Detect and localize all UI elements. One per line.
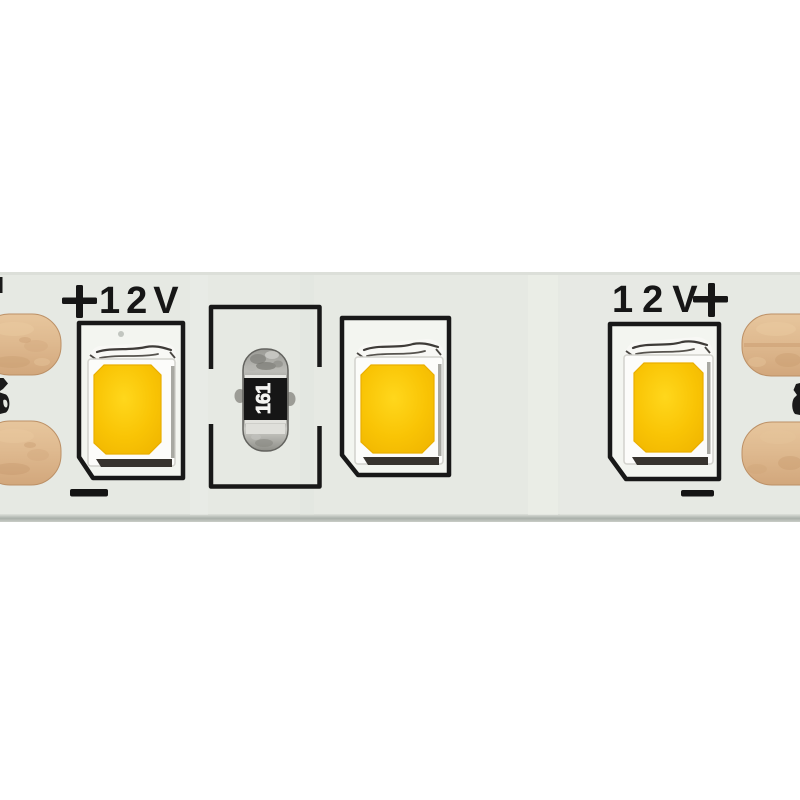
svg-text:12V: 12V xyxy=(612,279,707,321)
svg-text:161: 161 xyxy=(253,383,275,414)
svg-text:12V: 12V xyxy=(99,280,185,322)
